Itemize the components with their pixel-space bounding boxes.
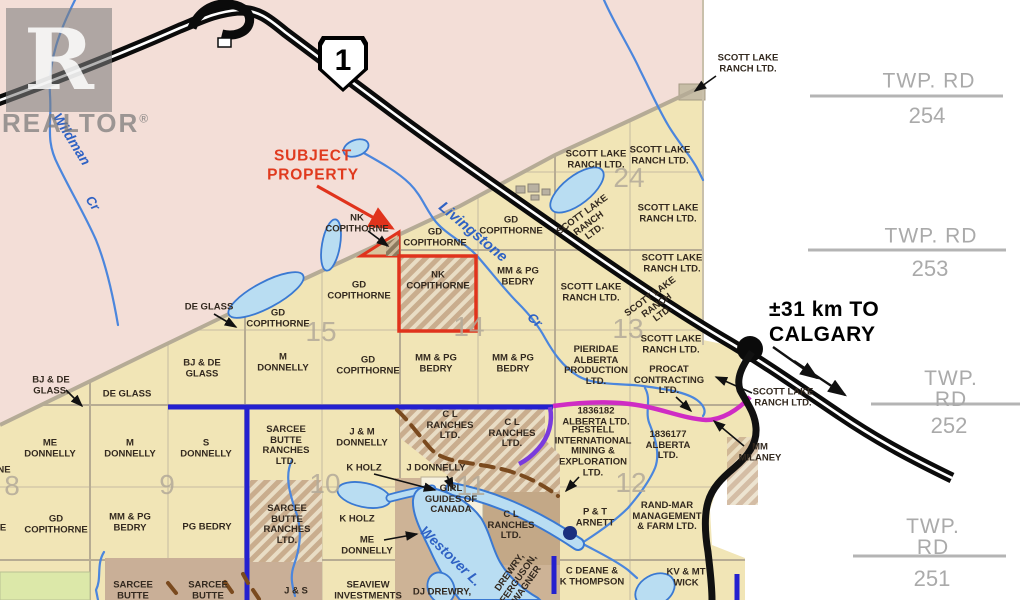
- twp-rd-253-title: TWP. RD: [885, 226, 978, 247]
- section-number-15: 15: [305, 318, 336, 346]
- section-number-8: 8: [4, 472, 20, 500]
- parcel-label-bj-de-glass-callout: BJ & DE GLASS.: [32, 375, 69, 396]
- parcel-label-scott-lake-callout: SCOTT LAKE RANCH LTD.: [718, 53, 779, 74]
- section-number-11: 11: [456, 472, 485, 500]
- parcel-label-s-donnelly: S DONNELLY: [180, 438, 231, 459]
- parcel-label-rand-mar: RAND-MAR MANAGEMENT & FARM LTD.: [632, 501, 701, 533]
- section-number-9: 9: [159, 471, 175, 499]
- parcel-label-1836177: 1836177 ALBERTA LTD.: [646, 430, 691, 462]
- parcel-label-m-donnelly: M DONNELLY: [257, 352, 308, 373]
- parcel-label-scott-lake: SCOTT LAKE RANCH LTD.: [561, 282, 622, 303]
- parcel-label-cl-ranches: C L RANCHES LTD.: [489, 418, 536, 450]
- parcel-label-me-donnelly-callout: ME DONNELLY: [341, 535, 392, 556]
- section-number-24: 24: [613, 164, 644, 192]
- registered-mark: ®: [139, 111, 150, 125]
- calgary-distance-label: ±31 km TO CALGARY: [769, 297, 879, 347]
- parcel-label-nk-copithorne-callout: NK COPITHORNE: [325, 213, 388, 234]
- parcel-label-scott-lake: SCOTT LAKE RANCH LTD.: [642, 253, 703, 274]
- parcel-label-gd-copithorne: GD COPITHORNE: [327, 280, 390, 301]
- twp-rd-254-number: 254: [909, 105, 946, 127]
- parcel-label-mm-pg-bedry: MM & PG BEDRY: [415, 353, 457, 374]
- parcel-label-mm-milaney: MM MILANEY: [739, 442, 782, 463]
- parcel-label-mm-pg-bedry: MM & PG BEDRY: [492, 353, 534, 374]
- parcel-label-scott-lake: SCOTT LAKE RANCH LTD.: [641, 334, 702, 355]
- parcel-label-cl-ranches: C L RANCHES LTD.: [488, 510, 535, 542]
- parcel-label-kv-wick: KV & MT WICK: [666, 567, 705, 588]
- parcel-label-gd-copithorne: GD COPITHORNE: [246, 308, 309, 329]
- parcel-label-mm-pg-bedry: MM & PG BEDRY: [109, 512, 151, 533]
- parcel-label-nk-copithorne-subject: NK COPITHORNE: [406, 270, 469, 291]
- realtor-logo-r: R: [24, 18, 94, 102]
- parcel-label-sarcee-butte-partial: SARCEE BUTTE: [188, 580, 228, 600]
- parcel-label-c-deane: C DEANE & K THOMPSON: [560, 566, 624, 587]
- parcel-label-cl-ranches: C L RANCHES LTD.: [427, 410, 474, 442]
- subject-property-label: SUBJECT PROPERTY: [267, 147, 359, 186]
- parcel-label-dj-drewry: DJ DREWRY,: [413, 588, 471, 599]
- parcel-label-sarcee-butte: SARCEE BUTTE RANCHES LTD.: [264, 504, 311, 547]
- section-number-12: 12: [615, 469, 646, 497]
- parcel-label-sarcee-butte: SARCEE BUTTE RANCHES LTD.: [263, 425, 310, 468]
- parcel-label-k-holz: K HOLZ: [339, 515, 374, 526]
- parcel-label-sarcee-butte-partial: SARCEE BUTTE: [113, 580, 153, 600]
- twp-rd-251-number: 251: [914, 568, 951, 590]
- parcel-label-k-holz-callout: K HOLZ: [346, 464, 381, 475]
- parcel-label-pt-arnett: P & T ARNETT: [576, 507, 615, 528]
- parcel-label-procat: PROCAT CONTRACTING LTD.: [634, 365, 704, 397]
- parcel-label-me-donnelly: ME DONNELLY: [24, 438, 75, 459]
- parcel-label-j-s: J & S: [284, 587, 308, 598]
- parcel-label-pieridae: PIERIDAE ALBERTA PRODUCTION LTD.: [564, 345, 628, 388]
- twp-rd-254-title: TWP. RD: [883, 71, 976, 92]
- twp-rd-253-number: 253: [912, 258, 949, 280]
- parcel-label-partial: E: [0, 524, 6, 535]
- parcel-label-mm-pg-bedry: MM & PG BEDRY: [497, 266, 539, 287]
- section-number-13: 13: [612, 315, 643, 343]
- parcel-label-gd-copithorne: GD COPITHORNE: [24, 514, 87, 535]
- realtor-logo: R: [6, 8, 112, 112]
- parcel-label-de-glass: DE GLASS: [103, 390, 152, 401]
- parcel-label-seaview: SEAVIEW INVESTMENTS: [334, 580, 402, 600]
- parcel-label-pg-bedry: PG BEDRY: [182, 523, 231, 534]
- section-number-10: 10: [309, 470, 340, 498]
- twp-rd-252-number: 252: [931, 415, 968, 437]
- parcel-label-scott-lake: SCOTT LAKE RANCH LTD.: [638, 203, 699, 224]
- twp-rd-251-title: TWP. RD: [888, 516, 979, 558]
- map-canvas: SCOTT LAKE RANCH LTD. SCOTT LAKE RANCH L…: [0, 0, 1024, 600]
- section-number-14: 14: [453, 313, 484, 341]
- parcel-label-m-donnelly: M DONNELLY: [104, 438, 155, 459]
- parcel-label-de-glass-callout: DE GLASS: [185, 303, 234, 314]
- twp-rd-252-title: TWP. RD: [915, 368, 988, 410]
- parcel-label-jm-donnelly: J & M DONNELLY: [336, 427, 387, 448]
- parcel-label-bj-de-glass: BJ & DE GLASS: [183, 358, 220, 379]
- parcel-label-gd-copithorne: GD COPITHORNE: [336, 355, 399, 376]
- realtor-wordmark: REALTOR®: [2, 110, 150, 136]
- parcel-label-scott-lake-callout: SCOTT LAKE RANCH LTD.: [753, 387, 814, 408]
